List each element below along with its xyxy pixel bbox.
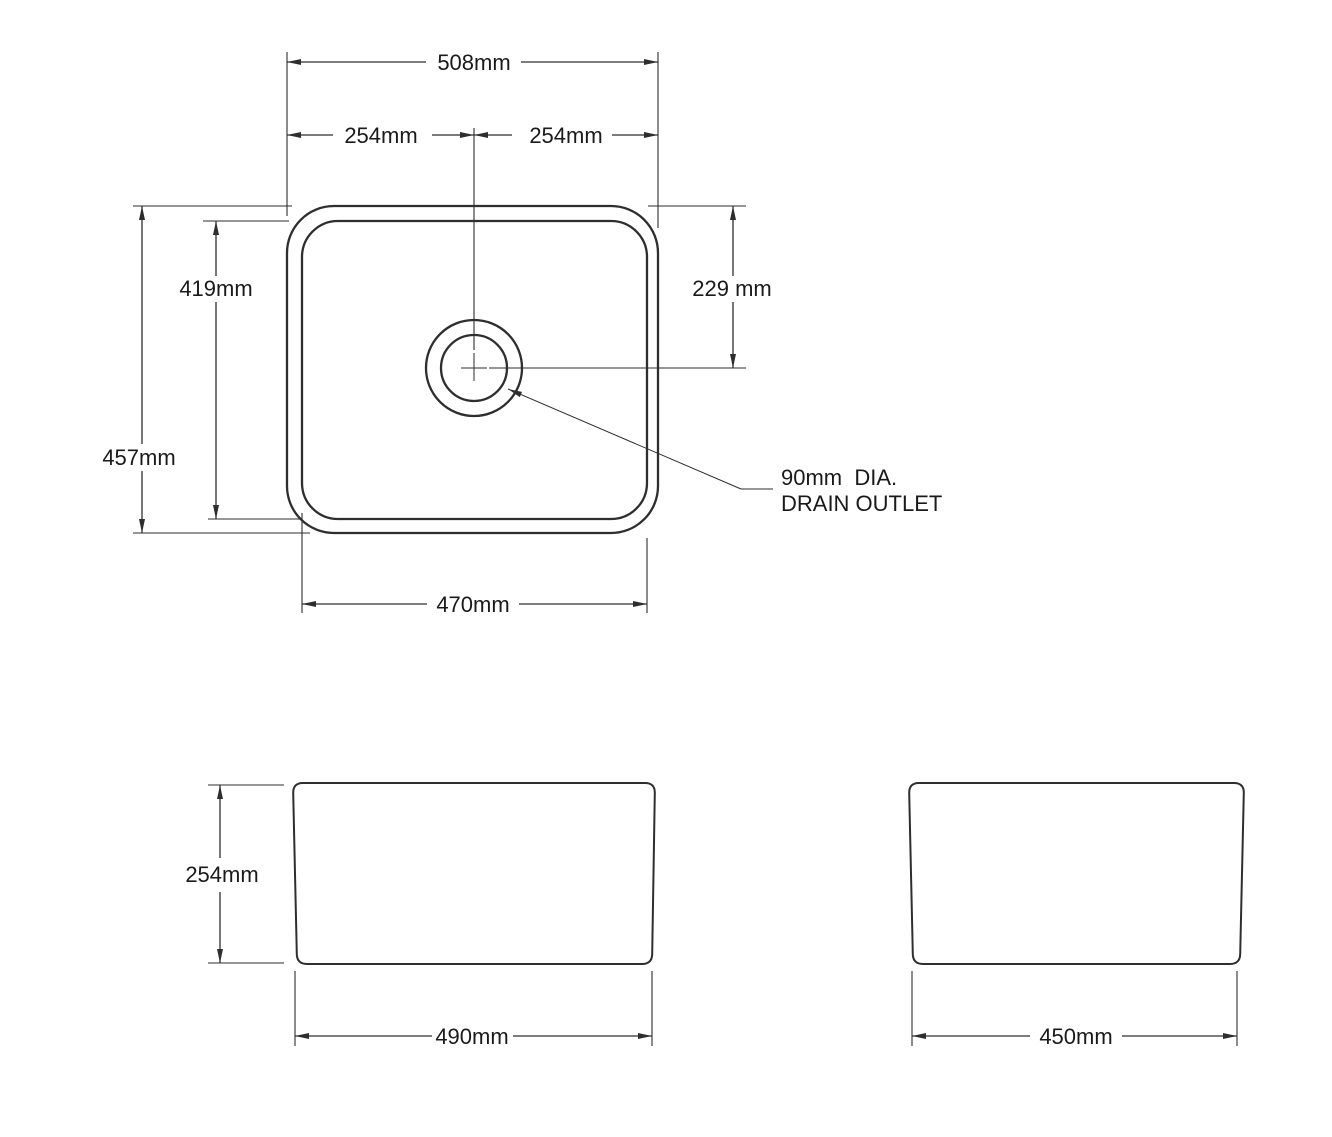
dim-inner-width: 470mm [302, 513, 647, 617]
dim-center-left-label: 254mm [344, 123, 417, 148]
dim-center-left: 254mm [287, 123, 474, 148]
arrowhead [213, 221, 219, 235]
dim-center-right: 254mm [474, 123, 658, 148]
side-view-outline [909, 783, 1244, 964]
arrowhead [139, 519, 145, 533]
arrowhead [217, 949, 223, 963]
drain-note-line2: DRAIN OUTLET [781, 491, 942, 516]
arrowhead [912, 1033, 926, 1039]
arrowhead [644, 59, 658, 65]
top-view: 508mm 254mm 254mm 419mm [102, 50, 942, 617]
dim-front-width-label: 490mm [435, 1024, 508, 1049]
arrowhead [295, 1033, 309, 1039]
technical-drawing-svg: 508mm 254mm 254mm 419mm [0, 0, 1332, 1137]
arrowhead [302, 601, 316, 607]
sink-outer-outline [287, 206, 658, 533]
sink-dimension-drawing: 508mm 254mm 254mm 419mm [0, 0, 1332, 1137]
dim-overall-length: 457mm [102, 206, 310, 533]
arrowhead [213, 505, 219, 519]
drain-leader-note: 90mm DIA. DRAIN OUTLET [508, 389, 942, 516]
dim-overall-width-label: 508mm [437, 50, 510, 75]
arrowhead [730, 354, 736, 368]
arrowhead [474, 132, 488, 138]
arrowhead [1223, 1033, 1237, 1039]
leader-arrowhead [508, 389, 522, 397]
dim-inner-length: 419mm [179, 221, 302, 519]
arrowhead [644, 132, 658, 138]
arrowhead [217, 785, 223, 799]
dim-side-width-label: 450mm [1039, 1024, 1112, 1049]
dim-drain-offset: 229 mm [648, 206, 772, 368]
dim-center-right-label: 254mm [529, 123, 602, 148]
dim-front-height-label: 254mm [185, 862, 258, 887]
arrowhead [460, 132, 474, 138]
front-view: 254mm 490mm [185, 783, 654, 1049]
dim-front-width: 490mm [295, 971, 652, 1049]
leader-line [508, 389, 741, 489]
drain-note-line1: 90mm DIA. [781, 465, 897, 490]
arrowhead [139, 206, 145, 220]
dim-drain-offset-label: 229 mm [692, 276, 771, 301]
side-view: 450mm [909, 783, 1244, 1049]
dim-overall-length-label: 457mm [102, 445, 175, 470]
arrowhead [638, 1033, 652, 1039]
arrowhead [287, 132, 301, 138]
dim-front-height: 254mm [185, 785, 284, 963]
arrowhead [633, 601, 647, 607]
arrowhead [287, 59, 301, 65]
dim-inner-length-label: 419mm [179, 276, 252, 301]
dim-side-width: 450mm [912, 971, 1237, 1049]
dim-inner-width-label: 470mm [436, 592, 509, 617]
arrowhead [730, 206, 736, 220]
front-view-outline [293, 783, 655, 964]
